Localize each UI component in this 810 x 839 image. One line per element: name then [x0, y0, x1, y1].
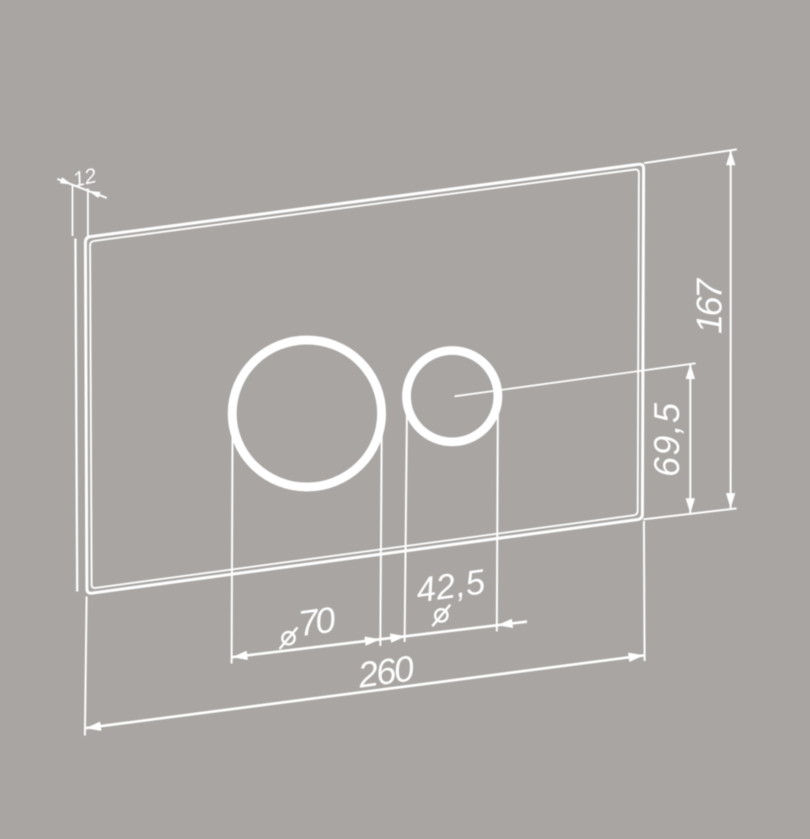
svg-text:260: 260 [354, 647, 416, 696]
svg-text:70: 70 [296, 598, 338, 644]
svg-text:69,5: 69,5 [646, 402, 687, 477]
svg-text:167: 167 [688, 277, 729, 334]
